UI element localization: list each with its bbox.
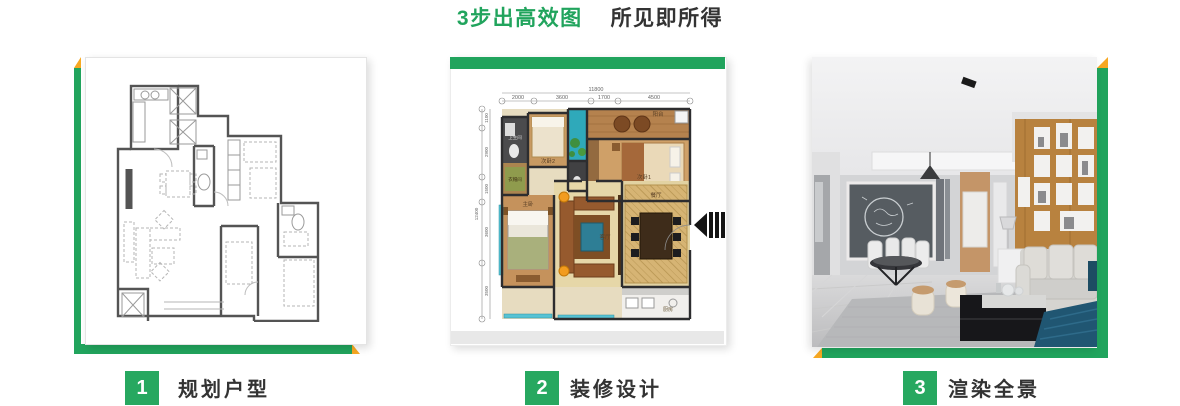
- planter: [568, 109, 587, 161]
- entrance-triangle: [694, 213, 707, 237]
- kitchen: [622, 287, 690, 319]
- curtain: [945, 179, 950, 259]
- walls: [118, 86, 318, 321]
- step1-number-badge: 1: [125, 371, 159, 405]
- green-accent-p3-right: [1097, 68, 1108, 358]
- svg-text:4500: 4500: [648, 95, 660, 101]
- furniture-dashed: [124, 142, 314, 306]
- step2-number-badge: 2: [525, 371, 559, 405]
- entrance-bar: [715, 212, 719, 238]
- page-title: 3步出高效图所见即所得: [0, 2, 1180, 32]
- bw-floorplan-drawing: [114, 82, 339, 322]
- step1-floorplan-card: [85, 57, 367, 345]
- bathroom1: [502, 117, 528, 163]
- yellow-corner-p3-topright: [1097, 57, 1108, 68]
- svg-text:主卧: 主卧: [522, 200, 534, 208]
- master-bedroom: [502, 195, 554, 287]
- curtain: [936, 179, 944, 261]
- svg-text:卫生间: 卫生间: [508, 134, 522, 141]
- corridor-window: [815, 182, 823, 242]
- svg-text:3600: 3600: [556, 95, 568, 101]
- ceiling-tray: [872, 152, 1032, 170]
- yellow-corner-p3-bottomleft: [813, 348, 822, 358]
- p2-footer-strip: [451, 331, 724, 344]
- svg-text:1100: 1100: [484, 113, 489, 123]
- green-accent-p3-bottom: [822, 348, 1108, 358]
- svg-text:1500: 1500: [484, 183, 489, 194]
- svg-text:3600: 3600: [484, 226, 489, 237]
- svg-text:2900: 2900: [484, 146, 489, 157]
- step2-label: 装修设计: [570, 373, 662, 402]
- svg-text:2000: 2000: [512, 95, 524, 101]
- wood-column: [960, 172, 990, 272]
- step3-render-card: [812, 57, 1097, 347]
- svg-text:次卧2: 次卧2: [541, 157, 555, 165]
- svg-text:3500: 3500: [484, 285, 489, 296]
- title-rest: 所见即所得: [611, 7, 724, 30]
- svg-text:11800: 11800: [589, 87, 604, 93]
- step3-number-badge: 3: [903, 371, 937, 405]
- step3-label: 渲染全景: [948, 373, 1040, 402]
- svg-text:1700: 1700: [598, 95, 610, 101]
- colored-floorplan-drawing: 2000 3600 1700 4500 11800 1100 2900 1500…: [472, 85, 707, 325]
- green-topbar-p2: [450, 57, 725, 69]
- entrance-arrow-icon: [694, 212, 725, 238]
- svg-text:阳台: 阳台: [652, 110, 664, 118]
- svg-text:厨房: 厨房: [663, 306, 673, 313]
- entrance-bar: [709, 212, 713, 238]
- svg-text:餐厅: 餐厅: [650, 191, 662, 199]
- svg-text:客厅: 客厅: [599, 233, 611, 241]
- entrance-bar: [721, 212, 725, 238]
- balcony: [587, 109, 690, 139]
- step1-label: 规划户型: [178, 373, 270, 402]
- livingroom-photo: [812, 57, 1097, 347]
- green-accent-p1-left: [74, 68, 81, 351]
- svg-text:衣帽间: 衣帽间: [508, 176, 522, 183]
- yellow-corner-p1-bottomright: [352, 344, 360, 354]
- yellow-corner-p1-topleft: [74, 57, 81, 68]
- svg-text:次卧1: 次卧1: [637, 173, 651, 181]
- navy-pillow: [1088, 261, 1097, 291]
- green-accent-p1-bottom: [74, 344, 352, 354]
- svg-text:12400: 12400: [474, 207, 479, 220]
- title-highlight: 3步出高效图: [457, 7, 583, 30]
